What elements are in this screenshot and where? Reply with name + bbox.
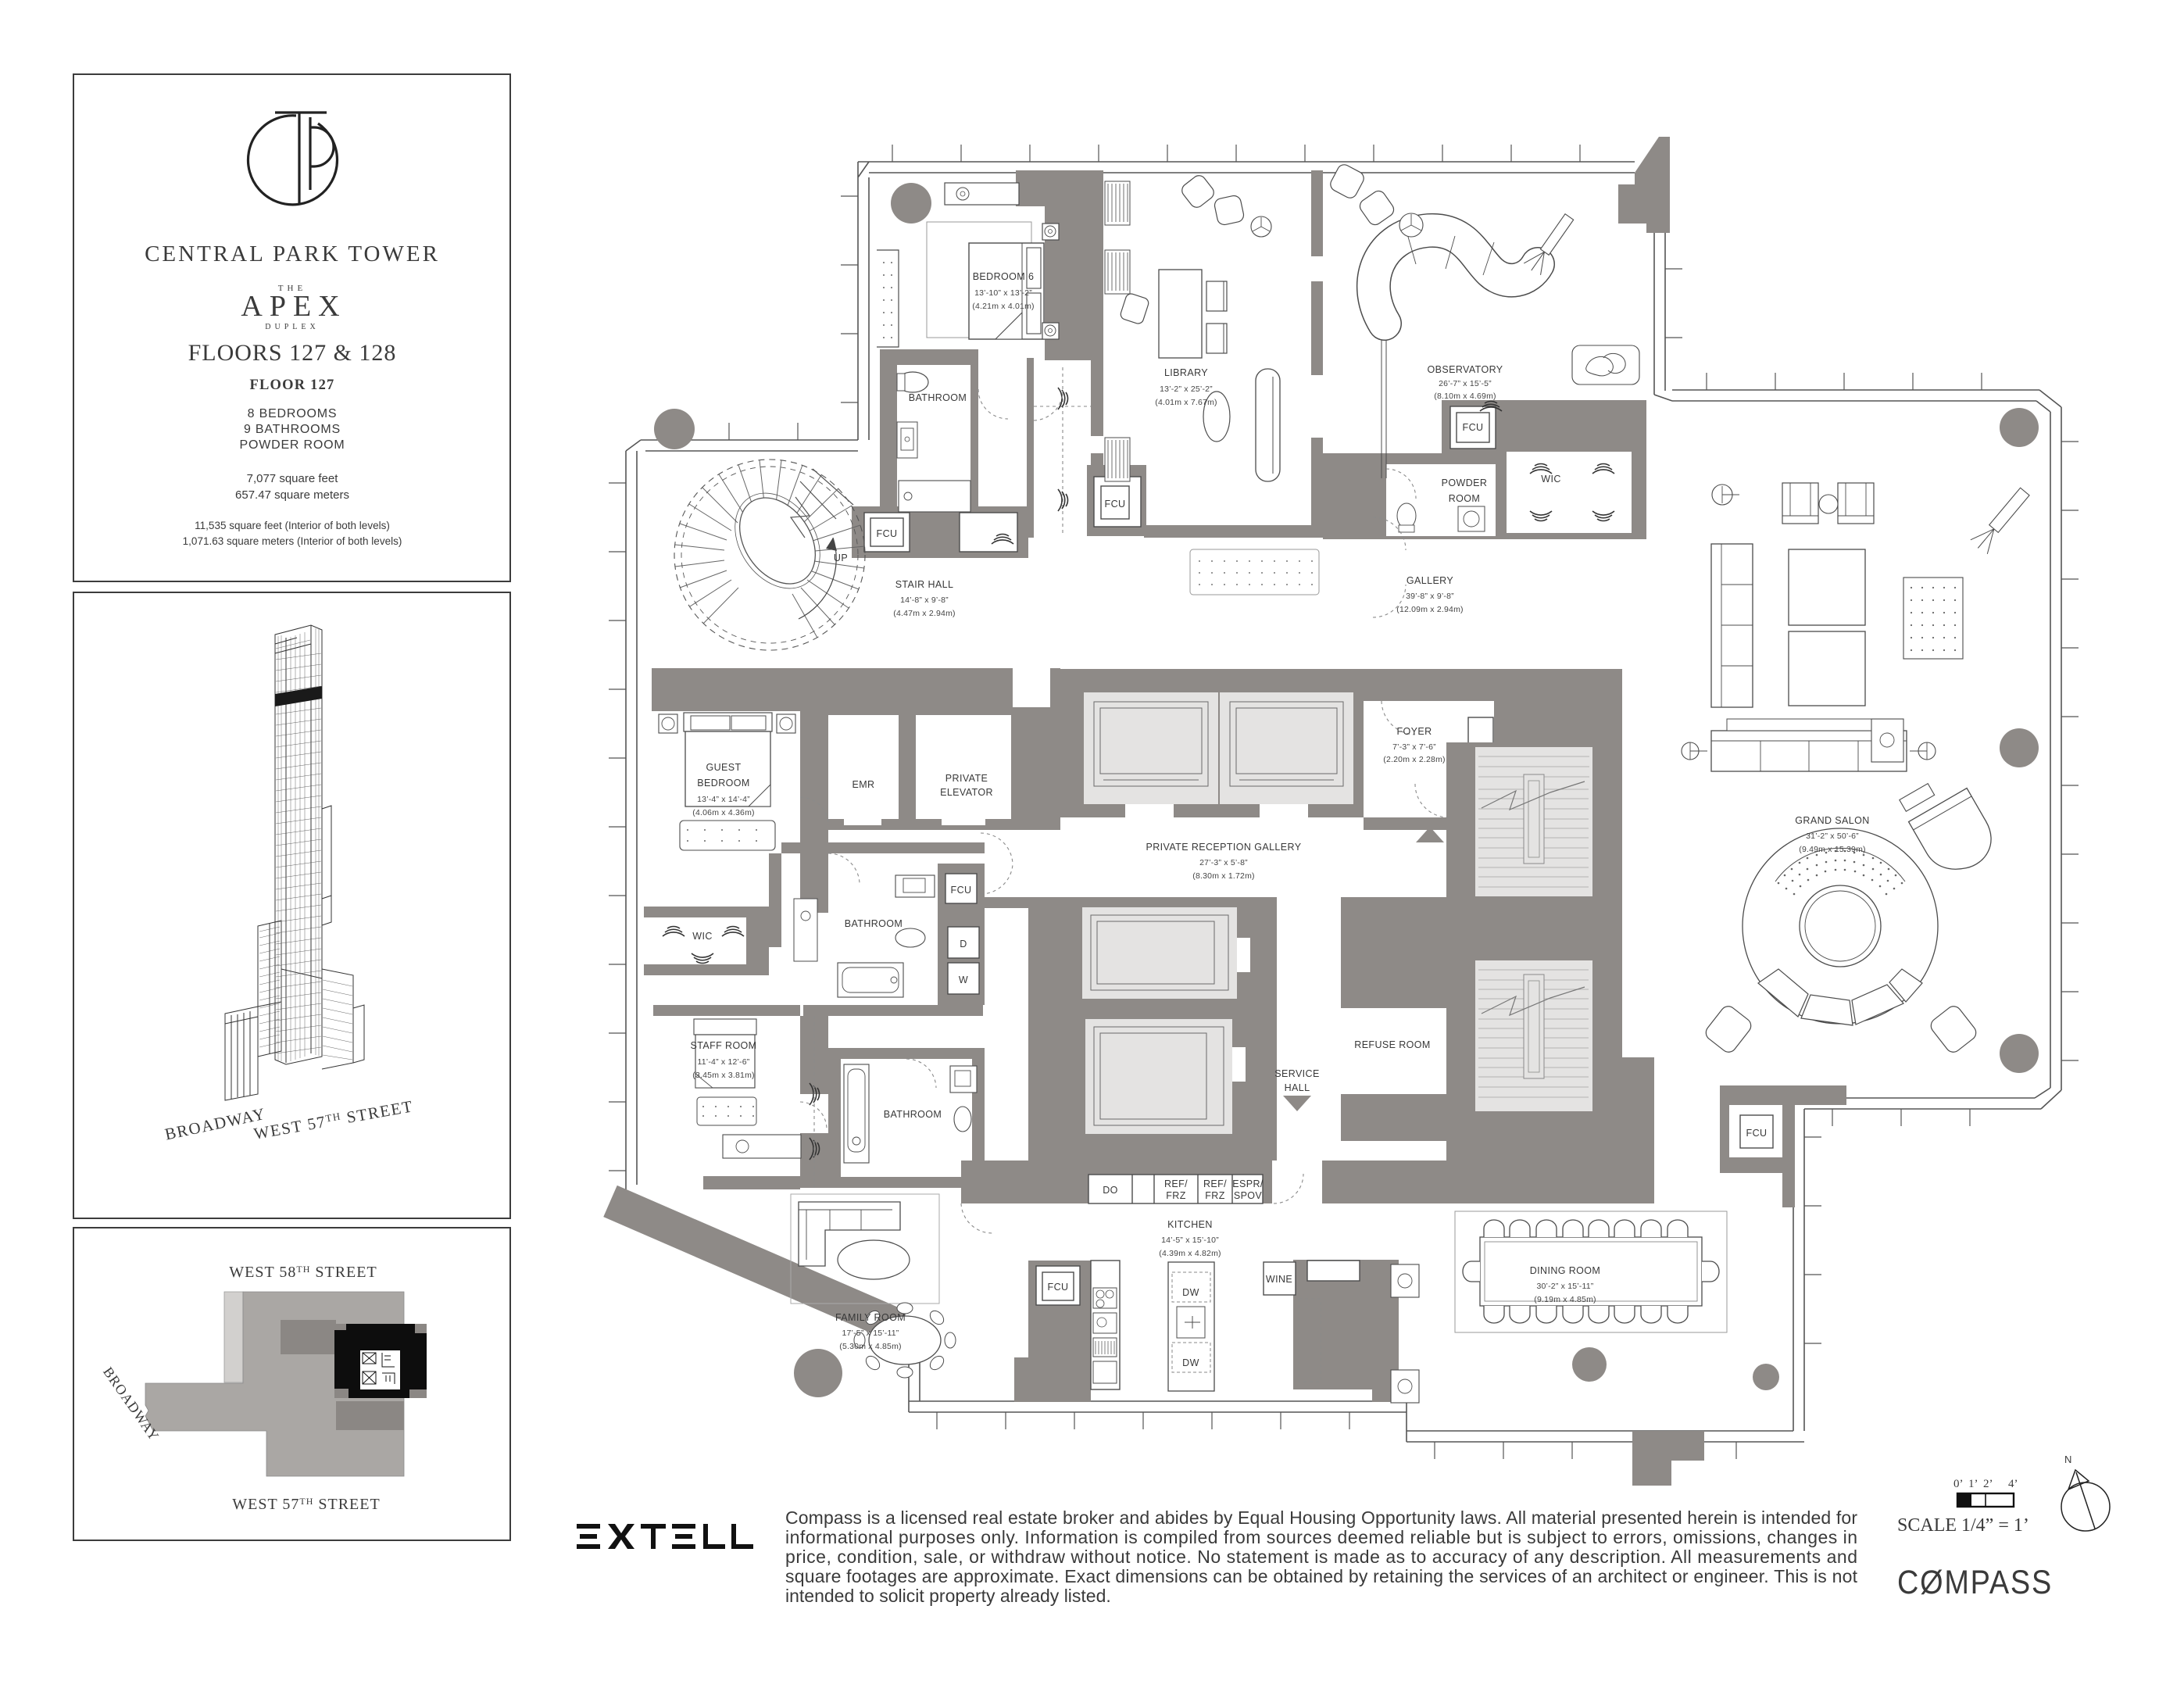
svg-text:KITCHEN: KITCHEN [1167,1219,1213,1230]
svg-text:BATHROOM: BATHROOM [884,1109,942,1120]
svg-text:UP: UP [834,553,848,563]
svg-text:7’-3” x 7’-6”: 7’-3” x 7’-6” [1392,742,1436,752]
svg-text:LIBRARY: LIBRARY [1164,367,1208,378]
svg-text:EMR: EMR [853,779,875,790]
svg-text:(4.47m x 2.94m): (4.47m x 2.94m) [893,609,955,618]
svg-text:(8.30m x 1.72m): (8.30m x 1.72m) [1192,871,1254,881]
svg-text:SPOV: SPOV [1234,1190,1263,1201]
svg-text:HALL: HALL [1285,1082,1310,1093]
svg-text:14’-5” x 15’-10”: 14’-5” x 15’-10” [1161,1236,1219,1245]
svg-text:N: N [2064,1454,2071,1465]
svg-text:(12.09m x 2.94m): (12.09m x 2.94m) [1396,605,1463,614]
svg-text:31’-2” x 50’-6”: 31’-2” x 50’-6” [1806,831,1859,841]
svg-text:ELEVATOR: ELEVATOR [940,787,993,798]
svg-text:FOYER: FOYER [1396,726,1432,737]
svg-text:REF/: REF/ [1164,1178,1188,1189]
svg-text:WINE: WINE [1266,1274,1292,1285]
svg-text:STAFF ROOM: STAFF ROOM [690,1040,756,1051]
svg-text:(2.20m x 2.28m): (2.20m x 2.28m) [1383,755,1445,764]
svg-text:(5.30m x 4.85m): (5.30m x 4.85m) [839,1342,901,1351]
svg-text:SCALE 1/4” = 1’: SCALE 1/4” = 1’ [1897,1515,2029,1536]
svg-text:ESPR/: ESPR/ [1232,1178,1264,1189]
svg-text:W: W [959,975,968,985]
svg-text:intended to solicit property a: intended to solicit property already lis… [785,1586,1111,1606]
svg-text:BATHROOM: BATHROOM [909,392,967,403]
svg-text:CØMPASS: CØMPASS [1897,1564,2053,1601]
svg-text:POWDER: POWDER [1442,477,1488,488]
svg-text:(9.49m x 15.39m): (9.49m x 15.39m) [1799,845,1865,854]
svg-text:7,077 square feet: 7,077 square feet [247,472,339,485]
svg-text:WIC: WIC [692,931,713,942]
svg-text:13’-10” x 13’-2”: 13’-10” x 13’-2” [974,288,1032,298]
svg-text:ROOM: ROOM [1449,493,1481,504]
svg-text:0’: 0’ [1953,1478,1964,1490]
svg-text:BEDROOM: BEDROOM [697,778,749,789]
svg-text:REFUSE ROOM: REFUSE ROOM [1354,1039,1430,1050]
svg-text:FRZ: FRZ [1166,1190,1186,1201]
svg-text:4’: 4’ [2008,1478,2018,1490]
svg-text:APEX: APEX [241,290,346,323]
svg-text:CENTRAL PARK TOWER: CENTRAL PARK TOWER [145,241,440,266]
svg-text:price, condition, sale, or wit: price, condition, sale, or withdraw with… [785,1547,1857,1567]
svg-text:WIC: WIC [1541,474,1561,485]
svg-text:DW: DW [1182,1357,1199,1368]
svg-text:FCU: FCU [1105,499,1126,510]
svg-text:13’-4” x 14’-4”: 13’-4” x 14’-4” [697,795,750,804]
svg-text:BEDROOM 6: BEDROOM 6 [973,271,1035,282]
svg-text:9 BATHROOMS: 9 BATHROOMS [244,423,341,436]
svg-text:(3.45m x 3.81m): (3.45m x 3.81m) [692,1071,754,1080]
svg-text:D: D [960,939,967,949]
svg-text:square footages are approximat: square footages are approximate. Exact d… [785,1566,1858,1586]
svg-text:informational purposes only. I: informational purposes only. Information… [785,1527,1857,1547]
svg-text:DO: DO [1103,1185,1118,1196]
svg-text:(4.21m x 4.01m): (4.21m x 4.01m) [972,302,1034,311]
svg-text:DINING ROOM: DINING ROOM [1530,1265,1601,1276]
svg-text:(4.01m x 7.67m): (4.01m x 7.67m) [1155,398,1217,407]
svg-text:FLOORS 127 & 128: FLOORS 127 & 128 [188,340,397,366]
svg-text:1’: 1’ [1968,1478,1978,1490]
svg-text:11’-4” x 12’-6”: 11’-4” x 12’-6” [698,1057,750,1067]
svg-text:FLOOR 127: FLOOR 127 [250,377,335,393]
svg-text:11,535 square feet (Interior o: 11,535 square feet (Interior of both lev… [195,520,390,531]
svg-text:17’-5” x 15’-11”: 17’-5” x 15’-11” [842,1329,899,1338]
svg-text:1,071.63 square meters (Interi: 1,071.63 square meters (Interior of both… [183,535,402,547]
svg-text:DUPLEX: DUPLEX [265,323,319,331]
svg-text:OBSERVATORY: OBSERVATORY [1427,364,1503,375]
svg-text:14’-8” x 9’-8”: 14’-8” x 9’-8” [900,595,949,605]
svg-text:30’-2” x 15’-11”: 30’-2” x 15’-11” [1536,1282,1593,1291]
svg-text:(9.19m x 4.85m): (9.19m x 4.85m) [1534,1295,1596,1304]
svg-text:PRIVATE RECEPTION GALLERY: PRIVATE RECEPTION GALLERY [1146,842,1302,853]
svg-text:Compass is a licensed real est: Compass is a licensed real estate broker… [785,1507,1857,1528]
svg-text:PRIVATE: PRIVATE [945,773,988,784]
svg-text:8 BEDROOMS: 8 BEDROOMS [248,407,338,420]
svg-text:STAIR HALL: STAIR HALL [895,579,954,590]
svg-text:GUEST: GUEST [706,762,741,773]
svg-text:13’-2” x 25’-2”: 13’-2” x 25’-2” [1160,384,1213,394]
svg-text:FCU: FCU [877,528,898,539]
svg-text:FRZ: FRZ [1205,1190,1225,1201]
svg-text:(8.10m x 4.69m): (8.10m x 4.69m) [1434,392,1496,401]
svg-text:(4.39m x 4.82m): (4.39m x 4.82m) [1159,1249,1221,1258]
svg-text:FAMILY ROOM: FAMILY ROOM [835,1312,906,1323]
svg-text:39’-8” x 9’-8”: 39’-8” x 9’-8” [1406,592,1454,601]
svg-text:BATHROOM: BATHROOM [845,918,903,929]
svg-text:657.47 square meters: 657.47 square meters [235,488,349,502]
svg-text:FCU: FCU [1463,422,1484,433]
svg-text:2’: 2’ [1983,1478,1993,1490]
svg-text:GRAND SALON: GRAND SALON [1795,815,1869,826]
svg-text:FCU: FCU [951,885,972,896]
svg-text:(4.06m x 4.36m): (4.06m x 4.36m) [692,808,754,817]
svg-text:GALLERY: GALLERY [1407,575,1454,586]
svg-text:26’-7” x 15’-5”: 26’-7” x 15’-5” [1439,379,1492,388]
svg-text:FCU: FCU [1746,1128,1768,1139]
svg-text:FCU: FCU [1048,1282,1069,1293]
svg-text:DW: DW [1182,1287,1199,1298]
svg-text:27’-3” x 5’-8”: 27’-3” x 5’-8” [1199,858,1248,867]
svg-text:POWDER ROOM: POWDER ROOM [239,438,345,452]
svg-text:SERVICE: SERVICE [1274,1068,1319,1079]
svg-text:REF/: REF/ [1203,1178,1227,1189]
